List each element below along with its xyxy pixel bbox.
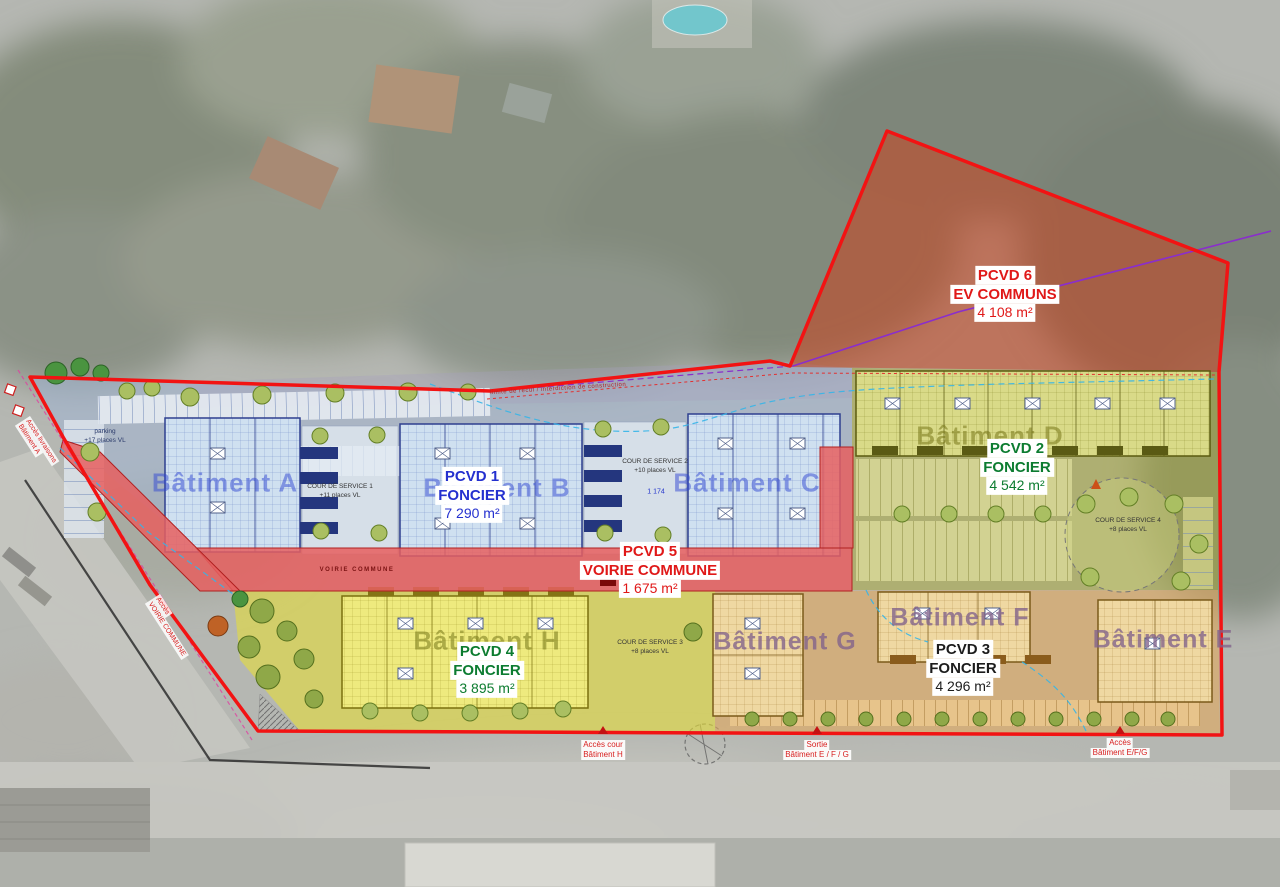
annotation-line: COUR DE SERVICE 1: [307, 483, 373, 492]
zone-area: 7 290 m²: [441, 505, 502, 523]
building-label-g: Bâtiment G: [713, 628, 856, 657]
annotation-line: COUR DE SERVICE 4: [1095, 517, 1161, 526]
red-tree: [208, 616, 228, 636]
annotation-line: COUR DE SERVICE 3: [617, 639, 683, 648]
zone-label-pcvd4: PCVD 4 FONCIER 3 895 m²: [450, 642, 524, 698]
access-arrow-icon: [598, 726, 608, 734]
zone-label-pcvd2: PCVD 2 FONCIER 4 542 m²: [980, 439, 1054, 495]
building-label-e: Bâtiment E: [1093, 626, 1234, 655]
annotation-line: +11 places VL: [307, 492, 373, 501]
access-line: Sortie: [805, 740, 830, 750]
zone-name: PCVD 6: [975, 266, 1035, 285]
annotation-cour-1: COUR DE SERVICE 1 +11 places VL: [307, 483, 373, 501]
annotation-line: +17 places VL: [84, 437, 125, 446]
zone-label-pcvd6: PCVD 6 EV COMMUNS 4 108 m²: [950, 266, 1059, 322]
annotation-line: parking: [84, 428, 125, 437]
access-label-efg: Accès Bâtiment E/F/G: [1091, 738, 1150, 758]
building-label-a: Bâtiment A: [152, 468, 298, 499]
annotation-line: +8 places VL: [1095, 526, 1161, 535]
zone-area: 4 108 m²: [974, 304, 1035, 322]
annotation-cour-2: COUR DE SERVICE 2 +10 places VL: [622, 458, 688, 476]
zone-name: PCVD 2: [987, 439, 1047, 458]
annotation-cour-4: COUR DE SERVICE 4 +8 places VL: [1095, 517, 1161, 535]
zone-area: 1 675 m²: [619, 580, 680, 598]
access-line: Bâtiment H: [581, 750, 625, 760]
annotation-parking: parking +17 places VL: [84, 428, 125, 446]
annotation-line: +10 places VL: [622, 467, 688, 476]
access-label-sortie: Sortie Bâtiment E / F / G: [783, 740, 851, 760]
zone-name: PCVD 1: [442, 467, 502, 486]
zone-label-pcvd5: PCVD 5 VOIRIE COMMUNE 1 675 m²: [580, 542, 720, 598]
zone-category: FONCIER: [450, 661, 524, 680]
zone-category: FONCIER: [926, 659, 1000, 678]
zone-category: FONCIER: [980, 458, 1054, 477]
building-label-c: Bâtiment C: [673, 468, 820, 499]
zone-name: PCVD 3: [933, 640, 993, 659]
annotation-cour-3: COUR DE SERVICE 3 +8 places VL: [617, 639, 683, 657]
access-line: Accès: [1107, 738, 1133, 748]
zone-name: PCVD 4: [457, 642, 517, 661]
access-line: Bâtiment E / F / G: [783, 750, 851, 760]
zone-label-pcvd3: PCVD 3 FONCIER 4 296 m²: [926, 640, 1000, 696]
access-line: Bâtiment E/F/G: [1091, 748, 1150, 758]
zone-category: FONCIER: [435, 486, 509, 505]
site-plan-canvas: Bâtiment A Bâtiment B Bâtiment C Bâtimen…: [0, 0, 1280, 887]
access-arrow-icon: [812, 726, 822, 734]
pool: [663, 5, 727, 35]
zone-area: 3 895 m²: [456, 680, 517, 698]
zone-name: PCVD 5: [620, 542, 680, 561]
zone-area: 4 296 m²: [932, 678, 993, 696]
annotation-line: COUR DE SERVICE 2: [622, 458, 688, 467]
zone-area: 4 542 m²: [986, 477, 1047, 495]
annotation-road-name: VOIRIE COMMUNE: [320, 567, 395, 573]
zone-category: EV COMMUNS: [950, 285, 1059, 304]
building-label-f: Bâtiment F: [890, 604, 1029, 633]
zone-category: VOIRIE COMMUNE: [580, 561, 720, 580]
access-line: Accès cour: [581, 740, 625, 750]
annotation-line: +8 places VL: [617, 648, 683, 657]
zone-label-pcvd1: PCVD 1 FONCIER 7 290 m²: [435, 467, 509, 523]
plan-drawing: [0, 0, 1280, 887]
access-arrow-icon: [1115, 726, 1125, 734]
access-label-cour-h: Accès cour Bâtiment H: [581, 740, 625, 760]
annotation-dimension: 1 174: [647, 489, 665, 496]
